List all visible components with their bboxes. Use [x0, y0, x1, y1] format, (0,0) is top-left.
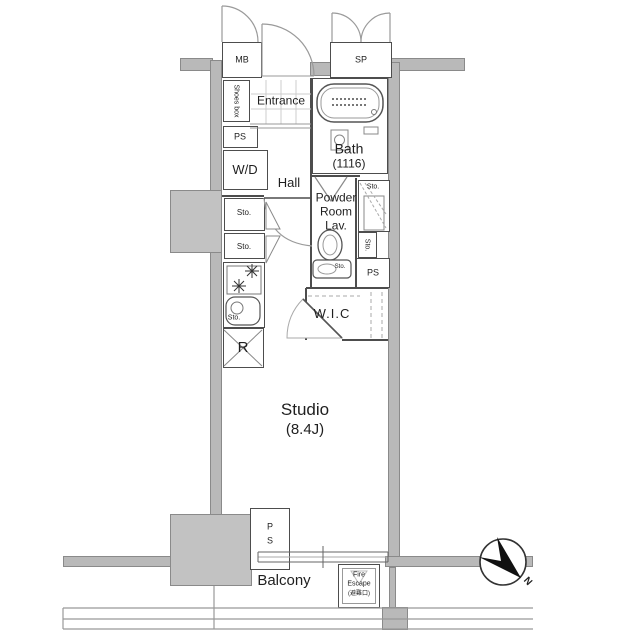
storage-label-1: Sto. [237, 209, 251, 217]
compass-icon [479, 537, 526, 585]
sp-door-right-arc [361, 13, 390, 42]
storage-label-vanity: Sto. [335, 264, 346, 270]
balcony-label: Balcony [257, 573, 310, 589]
ps-bottom-label-s: S [267, 536, 273, 545]
powder-room-label-3: Lav. [325, 220, 347, 233]
refrigerator-label: R [238, 340, 249, 356]
floor-plan: MB SP Entrance Shoes box PS W/D Hall Bat… [0, 0, 639, 640]
washer-dryer-label: W/D [232, 163, 257, 177]
ps-bottom-label-p: P [267, 522, 273, 531]
storage-label-column: Sto. [367, 183, 379, 190]
storage-label-2: Sto. [237, 243, 251, 251]
toilet-icon [318, 230, 342, 260]
powder-room-label-1: Powder [316, 192, 357, 205]
wic-label: W.I.C [314, 307, 351, 321]
fire-escape-label-3: (避難口) [348, 591, 370, 597]
shoes-box-label: Shoes box [232, 84, 239, 118]
bathtub-icon [317, 84, 383, 122]
studio-label: Studio [281, 401, 329, 419]
fire-escape-label-1: Fire [353, 571, 365, 578]
balcony-edge [63, 586, 533, 629]
storage-label-vertical: Sto. [363, 239, 370, 251]
ps-top-label: PS [234, 132, 246, 141]
studio-size-label: (8.4J) [286, 422, 324, 438]
bath-label: Bath [335, 142, 364, 157]
hall-label: Hall [278, 176, 300, 190]
ps-right-label: PS [367, 268, 379, 277]
balcony-window [258, 546, 388, 568]
entrance-label: Entrance [257, 95, 305, 108]
storage-label-kitchen: Sto. [228, 314, 240, 321]
mb-label: MB [235, 55, 249, 64]
sp-label: SP [355, 55, 367, 64]
fire-escape-label-2: Escape [347, 580, 370, 587]
bath-size-label: (1116) [333, 158, 366, 171]
entrance-door-arc [262, 24, 314, 76]
powder-room-label-2: Room [320, 206, 352, 219]
stove-icon [227, 264, 261, 294]
mb-door-arc [222, 6, 258, 42]
sp-door-left-arc [332, 13, 361, 42]
